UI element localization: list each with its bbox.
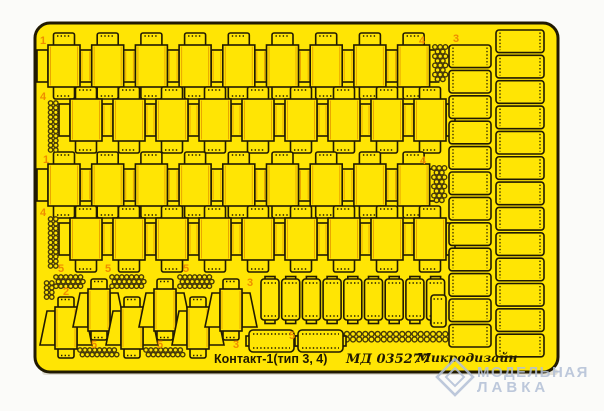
- hinge-dot-cluster: [110, 275, 146, 289]
- side-plate-part: [496, 258, 544, 281]
- era-block-part: [70, 87, 102, 153]
- era-block-part: [242, 206, 274, 272]
- hinge-dot-cluster: [433, 45, 448, 82]
- era-block-part: [199, 206, 231, 272]
- brand-name: Микродизайн: [416, 350, 518, 365]
- part-number-label: 5: [91, 339, 97, 351]
- small-plate-part: [344, 277, 362, 324]
- era-block-part: [113, 206, 145, 272]
- small-plate-part: [261, 277, 279, 324]
- part-number-label: 5: [157, 339, 163, 351]
- part-number-label: 5: [183, 263, 189, 275]
- part-number-label: 3: [233, 339, 239, 351]
- side-plate-part: [449, 70, 491, 93]
- era-block-part: [285, 206, 317, 272]
- part-number-label: 3: [247, 277, 253, 289]
- side-plate-part: [449, 299, 491, 322]
- part-number-label: 5: [289, 330, 295, 342]
- side-plate-part: [496, 81, 544, 104]
- part-number-label: 1: [40, 35, 46, 47]
- watermark-line2: ЛАВКА: [477, 379, 549, 396]
- side-plate-part: [449, 223, 491, 246]
- part-number-label: 4: [419, 35, 426, 47]
- hinge-dot-cluster: [78, 348, 119, 357]
- era-block-part: [242, 87, 274, 153]
- part-number-label: 3: [453, 33, 459, 45]
- sheet-title: Контакт-1(тип 3, 4): [214, 352, 327, 366]
- side-plate-part: [496, 131, 544, 154]
- hinge-dot-cluster: [432, 166, 447, 203]
- side-plate-part: [496, 182, 544, 205]
- side-plate-part: [496, 284, 544, 307]
- hinge-chain-strip: [48, 217, 58, 268]
- side-plate-part: [449, 45, 491, 68]
- etch-sheet-photo: 1414555233555434Контакт-1(тип 3, 4)МД 03…: [0, 0, 604, 411]
- small-plate-part: [302, 277, 320, 324]
- side-plate-part: [496, 106, 544, 129]
- part-number-label: 5: [58, 263, 64, 275]
- side-plate-part: [496, 233, 544, 256]
- part-number-label: 1: [43, 154, 49, 166]
- small-plate-row: [261, 277, 445, 324]
- side-plate-part: [449, 274, 491, 297]
- era-block-part: [70, 206, 102, 272]
- side-plate-part: [449, 197, 491, 220]
- small-plate-part: [431, 295, 446, 327]
- part-number-label: 2: [63, 286, 69, 298]
- small-plate-part: [365, 277, 383, 324]
- era-block-part: [113, 87, 145, 153]
- part-number-label: 4: [40, 91, 47, 103]
- side-plate-part: [496, 207, 544, 230]
- hinge-dot-cluster: [54, 275, 85, 289]
- side-plate-part: [496, 55, 544, 78]
- era-block-part: [371, 206, 403, 272]
- side-plate-part: [496, 157, 544, 180]
- era-block-part: [371, 87, 403, 153]
- small-plate-part: [323, 277, 341, 324]
- small-plate-part: [282, 277, 300, 324]
- part-number-label: 5: [105, 263, 111, 275]
- era-row-2: [59, 87, 455, 153]
- era-block-part: [328, 206, 360, 272]
- part-number-label: 4: [40, 207, 47, 219]
- product-photo: 1414555233555434Контакт-1(тип 3, 4)МД 03…: [0, 0, 604, 411]
- small-plate-part: [385, 277, 403, 324]
- side-plate-part: [496, 30, 544, 53]
- small-plate-part: [406, 277, 424, 324]
- era-block-part: [414, 87, 446, 153]
- side-plate-part: [449, 96, 491, 119]
- era-block-part: [156, 87, 188, 153]
- hinge-dot-cluster: [144, 348, 185, 357]
- cover-plate-part: [295, 330, 346, 352]
- era-block-part: [414, 206, 446, 272]
- era-row-4: [59, 206, 455, 272]
- side-plate-part: [496, 309, 544, 332]
- side-plate-part: [449, 172, 491, 195]
- hinge-dot-cluster: [178, 275, 214, 289]
- part-number-label: 4: [420, 155, 427, 167]
- era-block-part: [328, 87, 360, 153]
- hinge-chain-strip: [48, 101, 58, 152]
- side-plate-part: [449, 248, 491, 271]
- side-plate-part: [449, 147, 491, 170]
- era-block-part: [199, 87, 231, 153]
- side-plate-part: [449, 121, 491, 144]
- era-block-part: [285, 87, 317, 153]
- side-plate-part: [449, 324, 491, 347]
